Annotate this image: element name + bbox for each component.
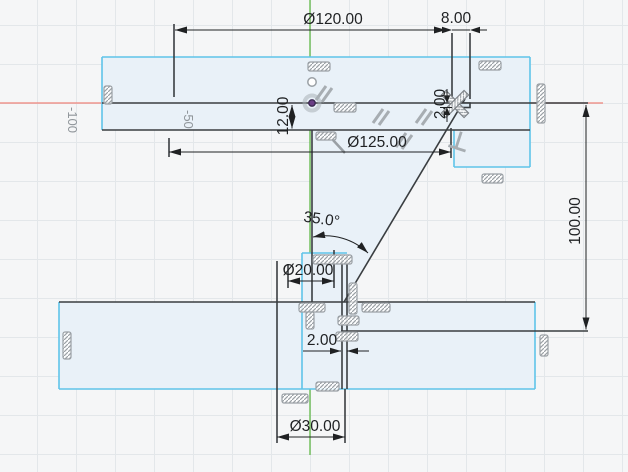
dim-len8-value[interactable]: 8.00: [441, 10, 472, 27]
profile-bottom-bar[interactable]: [59, 302, 535, 389]
hatch-box-icon[interactable]: [308, 62, 330, 71]
dim-len100-value[interactable]: 100.00: [567, 197, 584, 245]
hatch-box-icon[interactable]: [482, 174, 503, 183]
profile-right-box[interactable]: [454, 130, 530, 167]
sketch-canvas: Ø120.00 8.00 Ø125.00 12.00 2.00 35.0: [0, 0, 628, 472]
hatch-box-icon[interactable]: [282, 394, 308, 403]
dim-dia120-value[interactable]: Ø120.00: [303, 11, 363, 28]
dimension-len12[interactable]: 12.00: [275, 96, 292, 135]
hatch-box-icon[interactable]: [479, 61, 501, 70]
hatch-box-icon[interactable]: [540, 335, 548, 356]
dim-thk2-bottom-value[interactable]: 2.00: [307, 332, 338, 349]
hatch-box-icon[interactable]: [537, 84, 545, 123]
hatch-box-icon[interactable]: [349, 283, 357, 314]
dim-len12-value[interactable]: 12.00: [275, 96, 292, 135]
axis-label-neg50: -50: [181, 110, 196, 129]
hatch-box-icon[interactable]: [316, 382, 339, 391]
dim-dia125-value[interactable]: Ø125.00: [347, 134, 407, 151]
dim-dia30-value[interactable]: Ø30.00: [290, 418, 341, 435]
hatch-box-icon[interactable]: [63, 332, 71, 359]
dim-dia20-value[interactable]: Ø20.00: [283, 262, 334, 279]
hatch-box-icon[interactable]: [362, 303, 390, 312]
axis-label-neg100: -100: [65, 107, 80, 133]
dim-thk2-top-value[interactable]: 2.00: [432, 89, 449, 120]
sketch-point[interactable]: [308, 78, 316, 86]
hatch-box-icon[interactable]: [336, 332, 358, 341]
dimension-dia20[interactable]: Ø20.00: [283, 262, 334, 281]
hatch-box-icon[interactable]: [104, 86, 112, 104]
hatch-box-icon[interactable]: [334, 103, 356, 112]
hatch-box-icon[interactable]: [338, 316, 359, 325]
